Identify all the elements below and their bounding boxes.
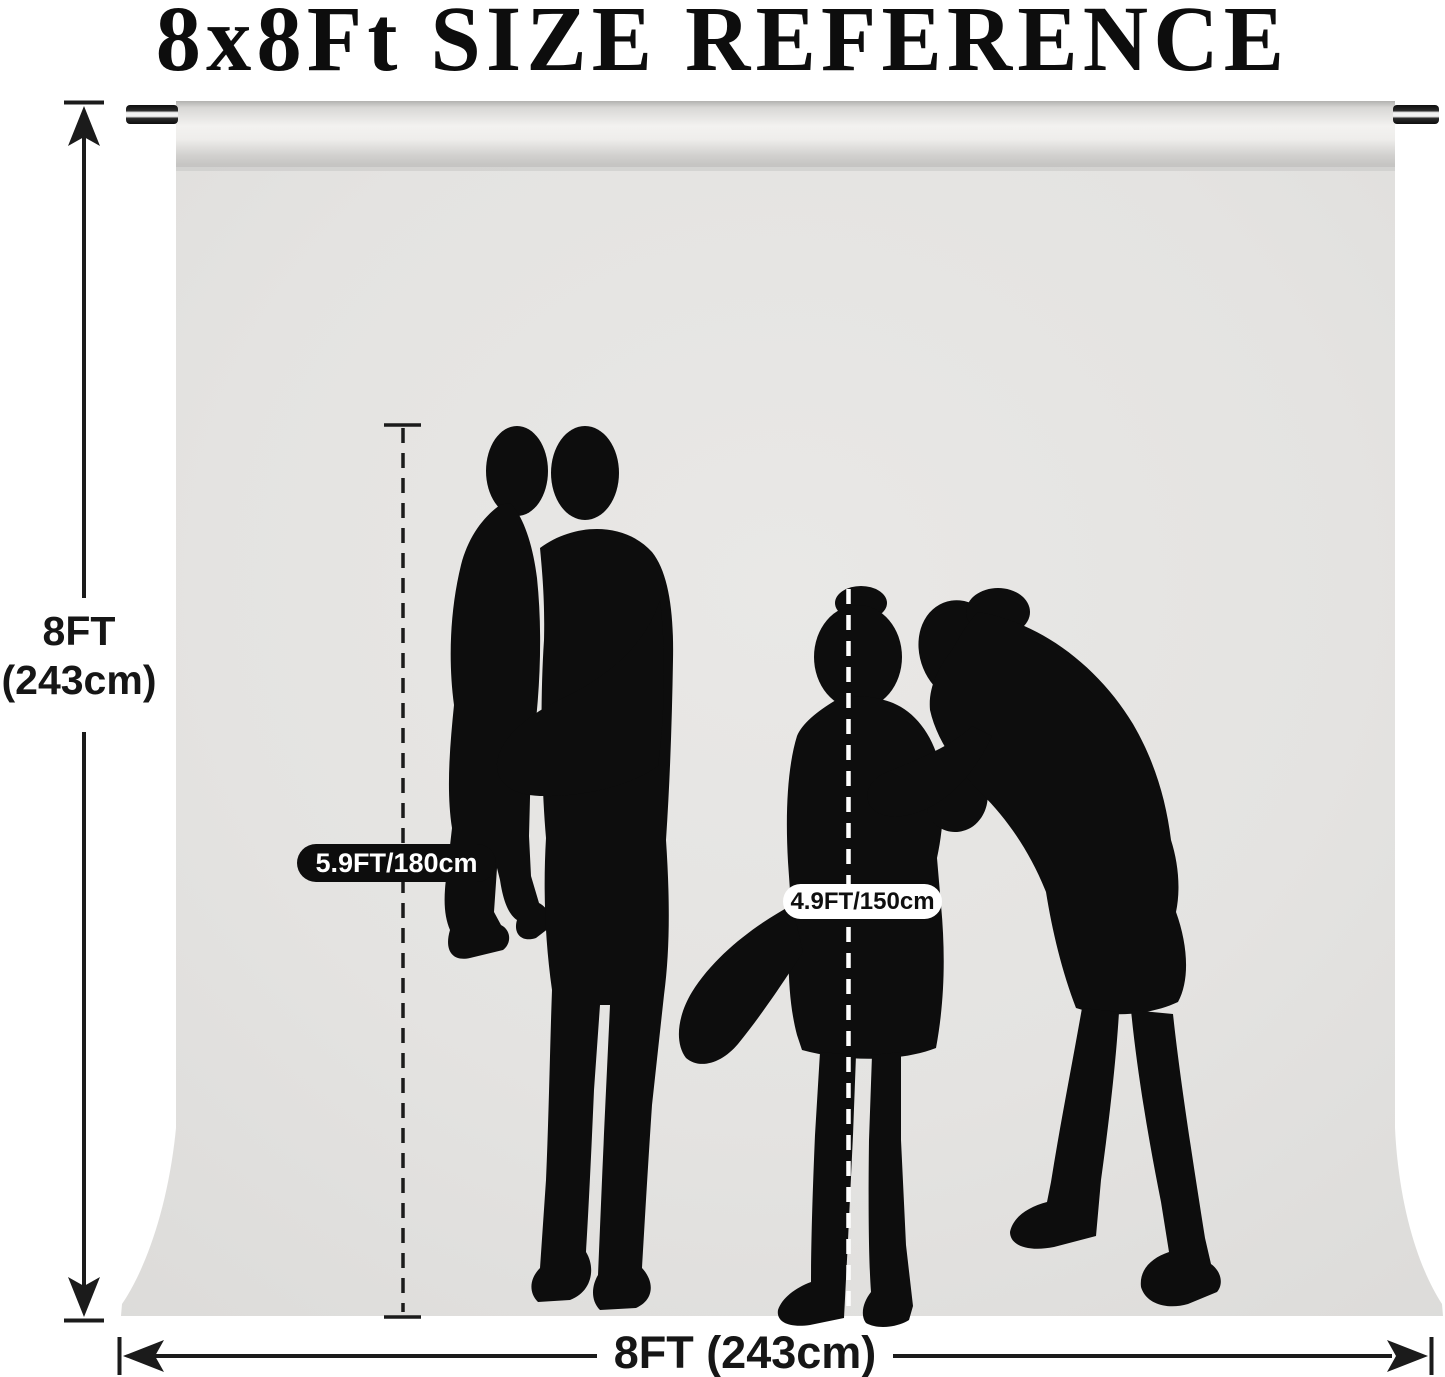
backdrop-rod-right [1393, 105, 1439, 124]
backdrop-rod-pocket [176, 101, 1395, 167]
backdrop-rod-left [126, 105, 178, 124]
child-height-badge: 4.9FT/150cm [783, 884, 942, 919]
page-title: 8x8Ft SIZE REFERENCE [0, 0, 1445, 87]
pocket-fold-shadow [176, 165, 1395, 171]
backdrop-scene [0, 0, 1445, 1377]
backdrop-sheet [121, 101, 1443, 1316]
adult-height-badge: 5.9FT/180cm [297, 844, 496, 882]
height-dimension-arrow [64, 103, 104, 1321]
width-dimension-label: 8FT (243cm) [572, 1328, 918, 1377]
height-dimension-label: 8FT (243cm) [0, 607, 162, 705]
size-reference-infographic: 8x8Ft SIZE REFERENCE 8FT (243cm) 5.9FT/1… [0, 0, 1445, 1377]
height-dimension-cm: (243cm) [0, 656, 162, 705]
width-arrow-right-head [1387, 1340, 1428, 1372]
height-dimension-feet: 8FT [0, 607, 162, 656]
